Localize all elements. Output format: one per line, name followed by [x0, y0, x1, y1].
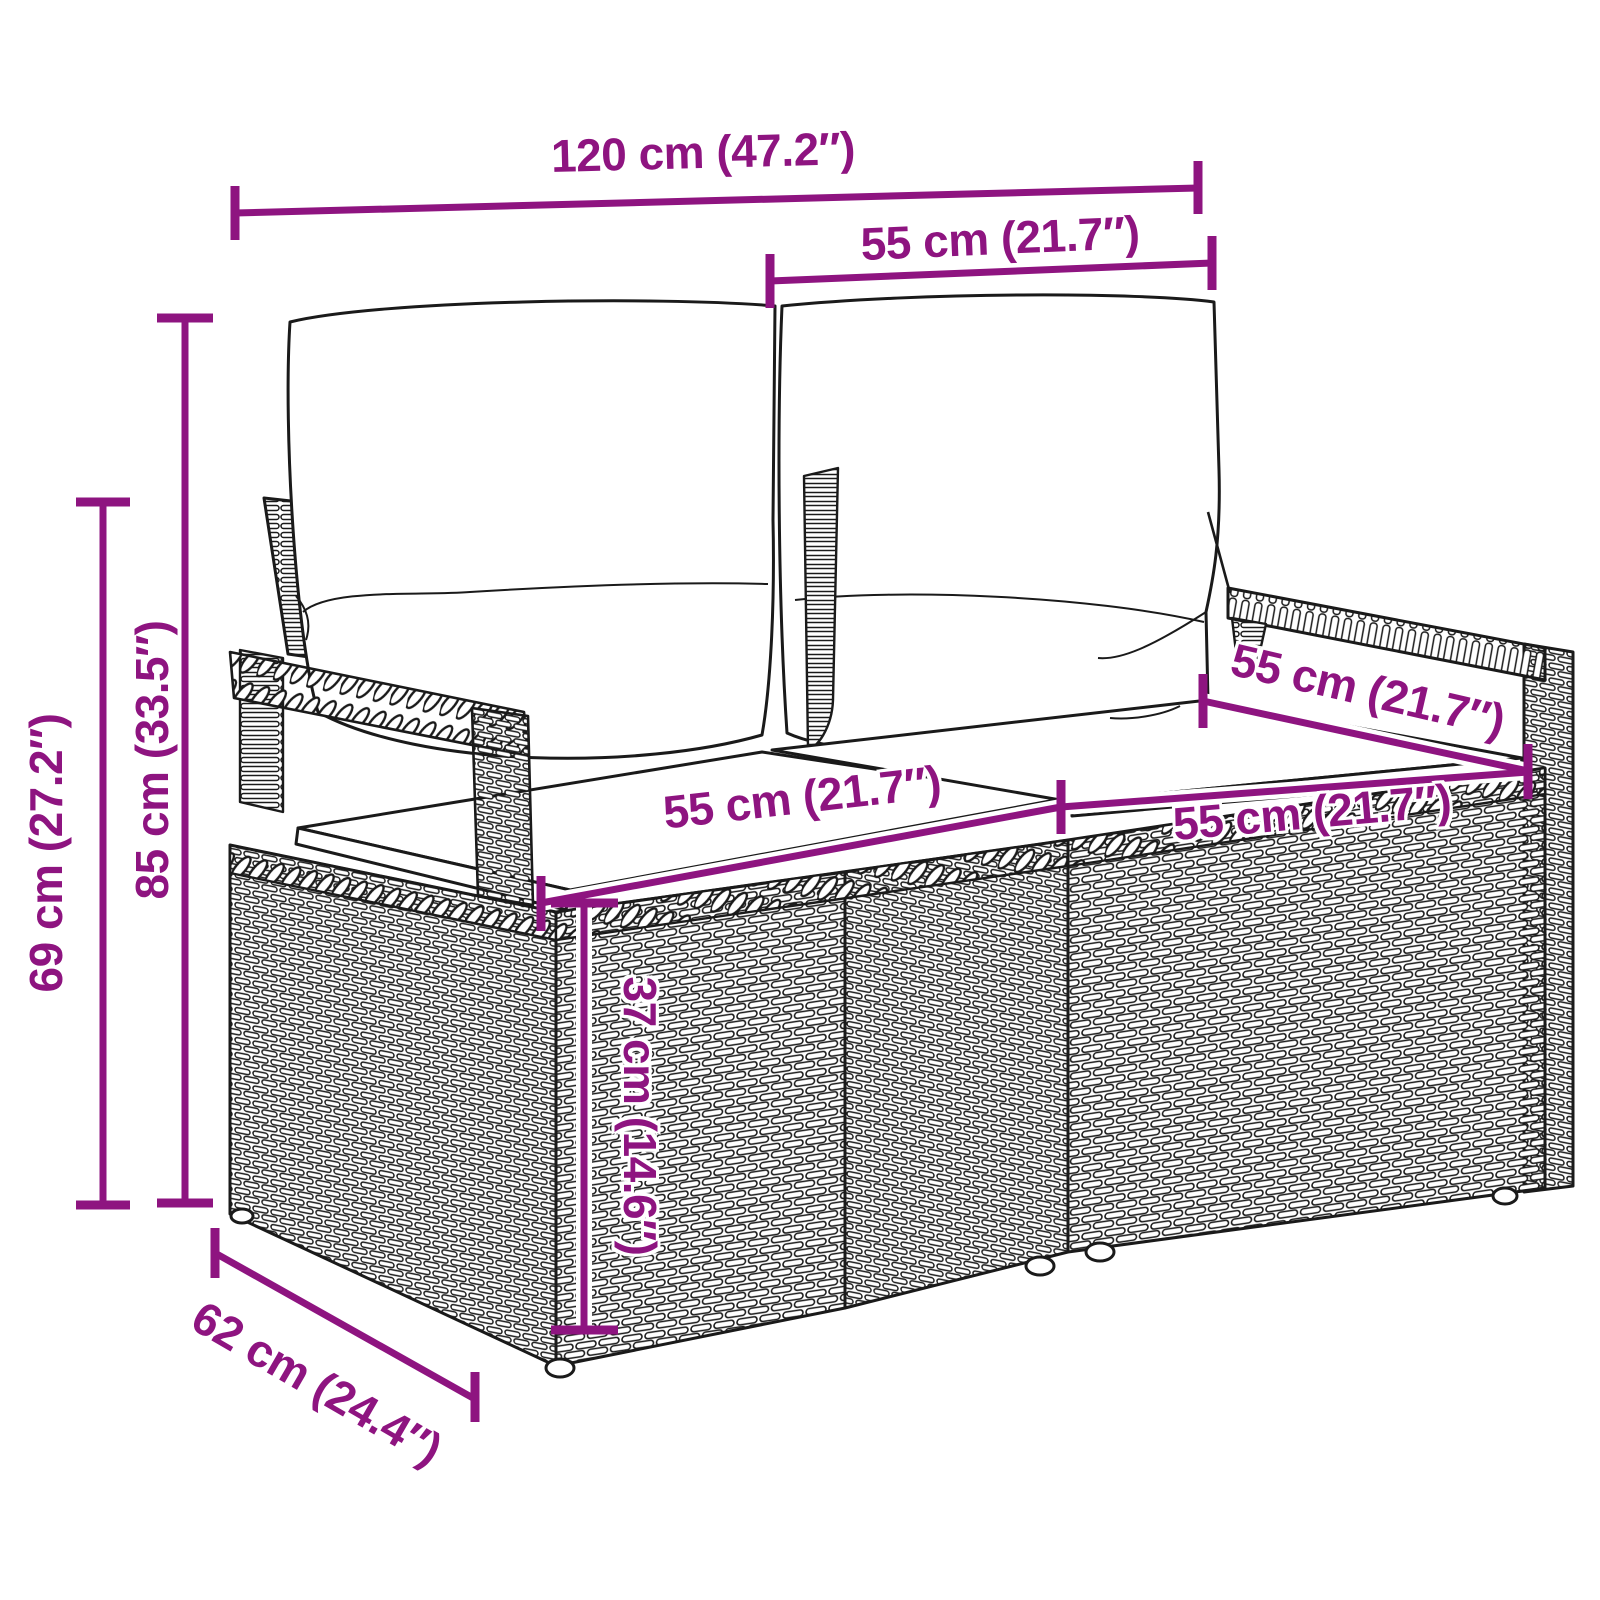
dimension-diagram: 120 cm (47.2″) 55 cm (21.7″) 85 cm (33.5… [0, 0, 1600, 1600]
dimension-label-overall-width: 120 cm (47.2″) [550, 121, 855, 183]
dimension-label-arm-height: 69 cm (27.2″) [19, 714, 73, 993]
dimension-label-overall-height: 85 cm (33.5″) [125, 621, 179, 900]
dimension-label-seat-height: 37 cm (14.6″) [613, 977, 667, 1256]
